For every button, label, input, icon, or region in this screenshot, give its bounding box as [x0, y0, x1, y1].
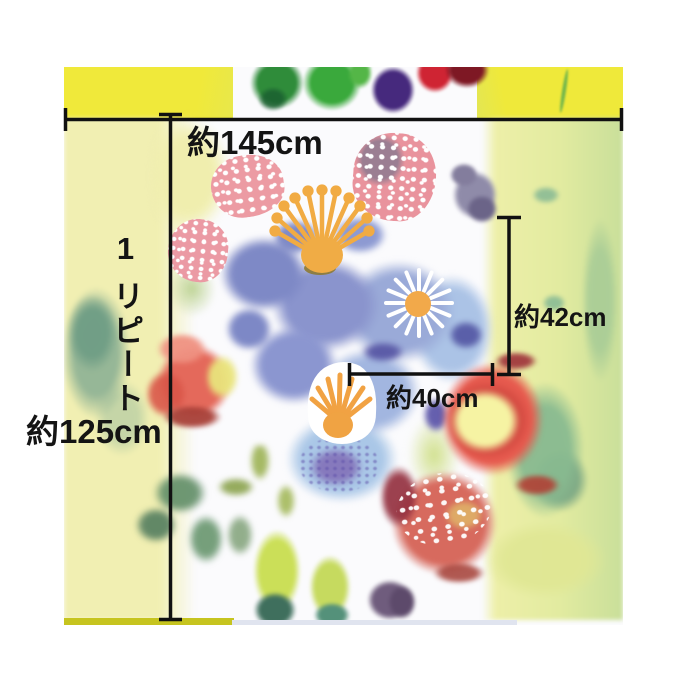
stamen-fan: [259, 180, 389, 275]
red-flower-top: [409, 67, 499, 103]
bottom-selvage-grey: [232, 620, 517, 625]
fabric-width-label: 約145cm: [187, 126, 323, 159]
lime-fruit-right: [301, 545, 361, 625]
repeat-word: リピート: [108, 280, 143, 416]
purple-blob-bottom: [360, 572, 422, 625]
repeat-label: 1リピート: [110, 231, 141, 416]
fabric-swatch: [64, 67, 623, 625]
green-leaf-right: [296, 67, 372, 119]
bottom-selvage-yellow: [64, 618, 234, 625]
repeat-count: 1: [108, 231, 143, 269]
tulip-stamen-fan: [304, 355, 384, 451]
top-selvage-yellow-left: [64, 67, 233, 120]
grey-purple-blob: [444, 161, 504, 229]
motif-height-label: 約42cm: [514, 304, 607, 330]
product-image: 約145cm 1リピート 約125cm 約42cm 約40cm: [0, 0, 695, 695]
motif-width-label: 約40cm: [386, 385, 479, 411]
white-daisy-flower: [381, 265, 457, 341]
repeat-height-label: 約125cm: [26, 415, 162, 448]
